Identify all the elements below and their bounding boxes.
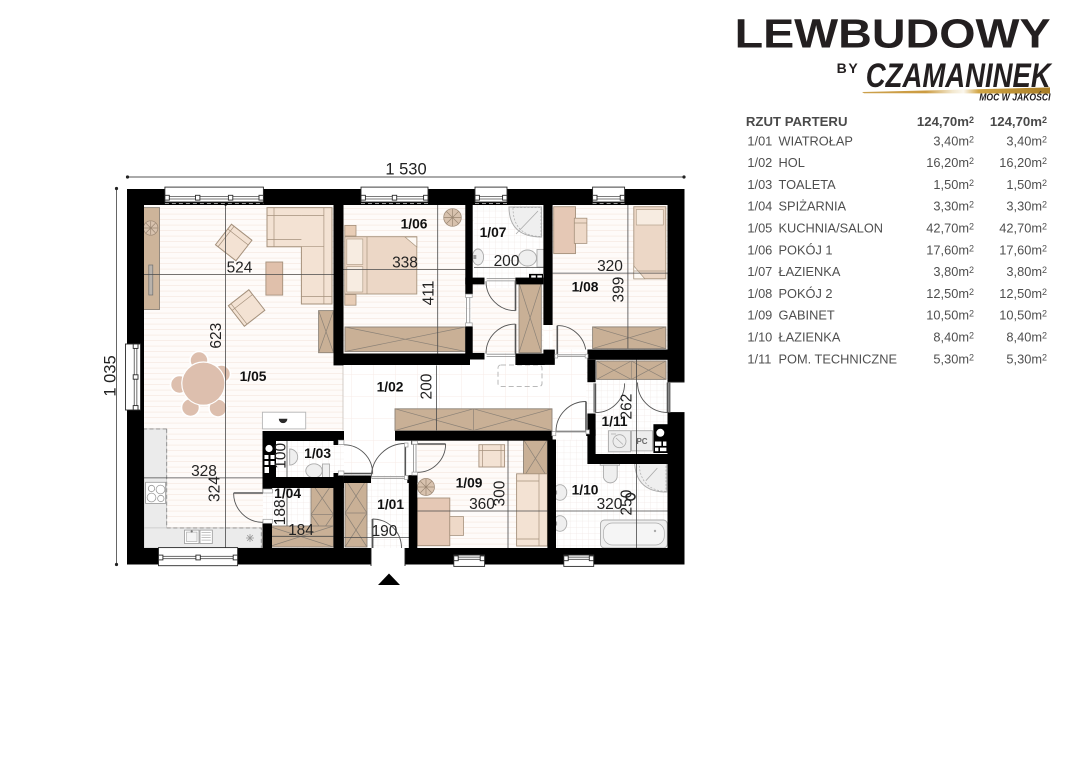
svg-text:1/04: 1/04 <box>274 486 301 501</box>
svg-text:POM. TECHNICZNE: POM. TECHNICZNE <box>779 351 898 366</box>
svg-text:42,70m2: 42,70m2 <box>926 221 974 236</box>
svg-text:1/09: 1/09 <box>747 308 772 323</box>
svg-text:100: 100 <box>273 442 290 468</box>
svg-text:BY: BY <box>837 61 860 76</box>
svg-text:12,50m2: 12,50m2 <box>926 286 974 301</box>
svg-text:HOL: HOL <box>779 155 805 170</box>
svg-text:WIATROŁAP: WIATROŁAP <box>779 133 853 148</box>
svg-text:124,70m2: 124,70m2 <box>990 114 1047 129</box>
svg-text:1/05: 1/05 <box>240 369 267 384</box>
svg-text:1/03: 1/03 <box>304 446 331 461</box>
svg-text:320: 320 <box>597 258 623 275</box>
svg-text:1/06: 1/06 <box>401 217 428 232</box>
svg-text:411: 411 <box>421 281 438 306</box>
svg-text:1/07: 1/07 <box>747 264 772 279</box>
svg-text:10,50m2: 10,50m2 <box>999 308 1047 323</box>
svg-text:ŁAZIENKA: ŁAZIENKA <box>779 330 841 345</box>
svg-text:POKÓJ 1: POKÓJ 1 <box>779 242 833 257</box>
svg-text:KUCHNIA/SALON: KUCHNIA/SALON <box>779 221 884 236</box>
svg-text:1/10: 1/10 <box>572 482 599 497</box>
svg-text:1/05: 1/05 <box>747 221 772 236</box>
svg-text:190: 190 <box>372 523 398 540</box>
svg-text:1/01: 1/01 <box>747 133 772 148</box>
svg-text:SPIŻARNIA: SPIŻARNIA <box>779 199 847 214</box>
svg-text:3,40m2: 3,40m2 <box>1006 133 1047 148</box>
svg-text:188: 188 <box>272 499 289 525</box>
svg-text:262: 262 <box>619 394 636 420</box>
svg-text:1/09: 1/09 <box>456 476 483 491</box>
svg-text:324: 324 <box>207 476 224 502</box>
svg-text:42,70m2: 42,70m2 <box>999 221 1047 236</box>
svg-text:1/01: 1/01 <box>377 497 404 512</box>
svg-text:200: 200 <box>494 253 520 270</box>
svg-text:1/02: 1/02 <box>747 155 772 170</box>
svg-text:3,30m2: 3,30m2 <box>933 199 974 214</box>
svg-text:250: 250 <box>619 489 636 515</box>
svg-text:1/08: 1/08 <box>572 279 599 294</box>
svg-text:524: 524 <box>227 260 253 277</box>
svg-text:LEWBUDOWY: LEWBUDOWY <box>735 11 1051 57</box>
svg-text:ŁAZIENKA: ŁAZIENKA <box>779 264 841 279</box>
svg-text:1/03: 1/03 <box>747 177 772 192</box>
svg-text:17,60m2: 17,60m2 <box>999 242 1047 257</box>
svg-text:3,80m2: 3,80m2 <box>1006 264 1047 279</box>
svg-text:200: 200 <box>419 373 436 399</box>
svg-text:1/08: 1/08 <box>747 286 772 301</box>
svg-text:1,50m2: 1,50m2 <box>933 177 974 192</box>
svg-text:1/07: 1/07 <box>480 225 507 240</box>
svg-text:3,30m2: 3,30m2 <box>1006 199 1047 214</box>
svg-text:GABINET: GABINET <box>779 308 835 323</box>
svg-text:5,30m2: 5,30m2 <box>933 351 974 366</box>
svg-text:1 035: 1 035 <box>102 355 120 396</box>
svg-text:300: 300 <box>492 480 509 506</box>
svg-text:17,60m2: 17,60m2 <box>926 242 974 257</box>
svg-text:124,70m2: 124,70m2 <box>917 114 974 129</box>
svg-text:5,30m2: 5,30m2 <box>1006 351 1047 366</box>
svg-text:623: 623 <box>208 323 225 349</box>
svg-text:399: 399 <box>611 277 628 303</box>
svg-text:1/11: 1/11 <box>747 351 771 366</box>
svg-text:16,20m2: 16,20m2 <box>999 155 1047 170</box>
svg-text:12,50m2: 12,50m2 <box>999 286 1047 301</box>
svg-text:184: 184 <box>288 522 314 539</box>
svg-text:16,20m2: 16,20m2 <box>926 155 974 170</box>
svg-text:3,40m2: 3,40m2 <box>933 133 974 148</box>
svg-text:1/10: 1/10 <box>747 330 772 345</box>
svg-text:3,80m2: 3,80m2 <box>933 264 974 279</box>
svg-text:1 530: 1 530 <box>385 161 426 179</box>
svg-text:8,40m2: 8,40m2 <box>1006 330 1047 345</box>
svg-text:1/04: 1/04 <box>747 199 772 214</box>
svg-text:TOALETA: TOALETA <box>779 177 837 192</box>
svg-text:1/02: 1/02 <box>377 380 404 395</box>
svg-text:338: 338 <box>392 255 418 272</box>
svg-text:RZUT PARTERU: RZUT PARTERU <box>746 114 848 129</box>
svg-text:10,50m2: 10,50m2 <box>926 308 974 323</box>
svg-text:MOC W JAKOŚCI: MOC W JAKOŚCI <box>979 91 1051 104</box>
svg-text:1,50m2: 1,50m2 <box>1006 177 1047 192</box>
svg-text:1/06: 1/06 <box>747 242 772 257</box>
svg-text:8,40m2: 8,40m2 <box>933 330 974 345</box>
svg-text:POKÓJ 2: POKÓJ 2 <box>779 286 833 301</box>
svg-text:PC: PC <box>636 437 647 446</box>
